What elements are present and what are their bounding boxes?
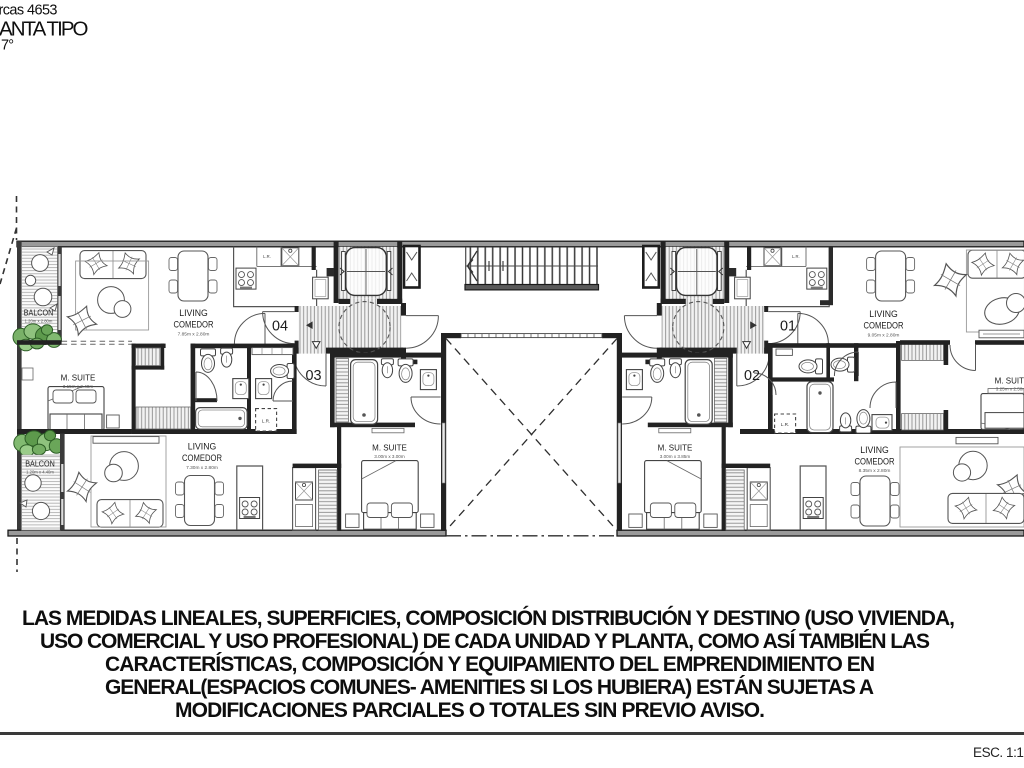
svg-text:1.20m x 2.80m: 1.20m x 2.80m [25,319,53,324]
svg-text:3.15m x 2.40m: 3.15m x 2.40m [63,384,94,389]
svg-text:COMEDOR: COMEDOR [182,453,222,464]
svg-text:3.25m x 2.50m: 3.25m x 2.50m [996,387,1024,392]
svg-text:3.00m x 3.85m: 3.00m x 3.85m [660,454,691,459]
svg-text:3.00m x 3.00m: 3.00m x 3.00m [374,454,405,459]
svg-text:M. SUITE: M. SUITE [995,377,1024,386]
svg-text:LIVING: LIVING [188,442,217,453]
svg-text:M. SUITE: M. SUITE [372,444,407,453]
svg-text:03: 03 [305,368,321,384]
svg-text:L.R.: L.R. [263,254,271,259]
svg-text:L.R.: L.R. [781,422,789,427]
svg-text:USO COMERCIAL Y USO PROFESIONA: USO COMERCIAL Y USO PROFESIONAL) DE CADA… [40,630,930,653]
svg-text:M. SUITE: M. SUITE [658,444,693,453]
svg-text:LAS MEDIDAS LINEALES, SUPERFIC: LAS MEDIDAS LINEALES, SUPERFICIES, COMPO… [22,606,955,630]
svg-text:COMEDOR: COMEDOR [174,320,214,331]
svg-text:7.85m x 2.80m: 7.85m x 2.80m [178,331,210,337]
svg-text:02: 02 [744,368,760,384]
svg-text:ESC. 1:10: ESC. 1:10 [973,745,1024,760]
svg-text:BALCON: BALCON [25,460,55,469]
svg-text:GENERAL(ESPACIOS COMUNES- AMEN: GENERAL(ESPACIOS COMUNES- AMENITIES SI L… [105,676,874,699]
svg-text:CARACTERÍSTICAS, COMPOSICIÓN Y: CARACTERÍSTICAS, COMPOSICIÓN Y EQUIPAMIE… [105,652,875,676]
svg-text:LIVING: LIVING [860,445,889,456]
svg-text:8.35m x 2.80m: 8.35m x 2.80m [859,468,891,474]
svg-text:BALCON: BALCON [24,309,54,318]
svg-text:LIVING: LIVING [179,308,208,319]
svg-text:L.R.: L.R. [792,254,800,259]
svg-text:COMEDOR: COMEDOR [864,321,904,332]
svg-text:1.20m x 4.40m: 1.20m x 4.40m [26,470,54,475]
svg-text:7°: 7° [1,38,14,54]
svg-text:7.30m x 2.80m: 7.30m x 2.80m [186,465,218,471]
svg-text:01: 01 [780,319,796,335]
svg-text:rcas 4653: rcas 4653 [0,2,58,18]
svg-text:L.R.: L.R. [262,419,270,424]
svg-text:04: 04 [272,319,288,335]
svg-text:9.05m x 2.80m: 9.05m x 2.80m [868,332,900,338]
svg-text:M. SUITE: M. SUITE [61,374,96,383]
svg-text:COMEDOR: COMEDOR [855,457,895,468]
svg-text:LIVING: LIVING [869,309,898,320]
svg-text:MODIFICACIONES PARCIALES O TOT: MODIFICACIONES PARCIALES O TOTALES SIN P… [175,699,765,722]
